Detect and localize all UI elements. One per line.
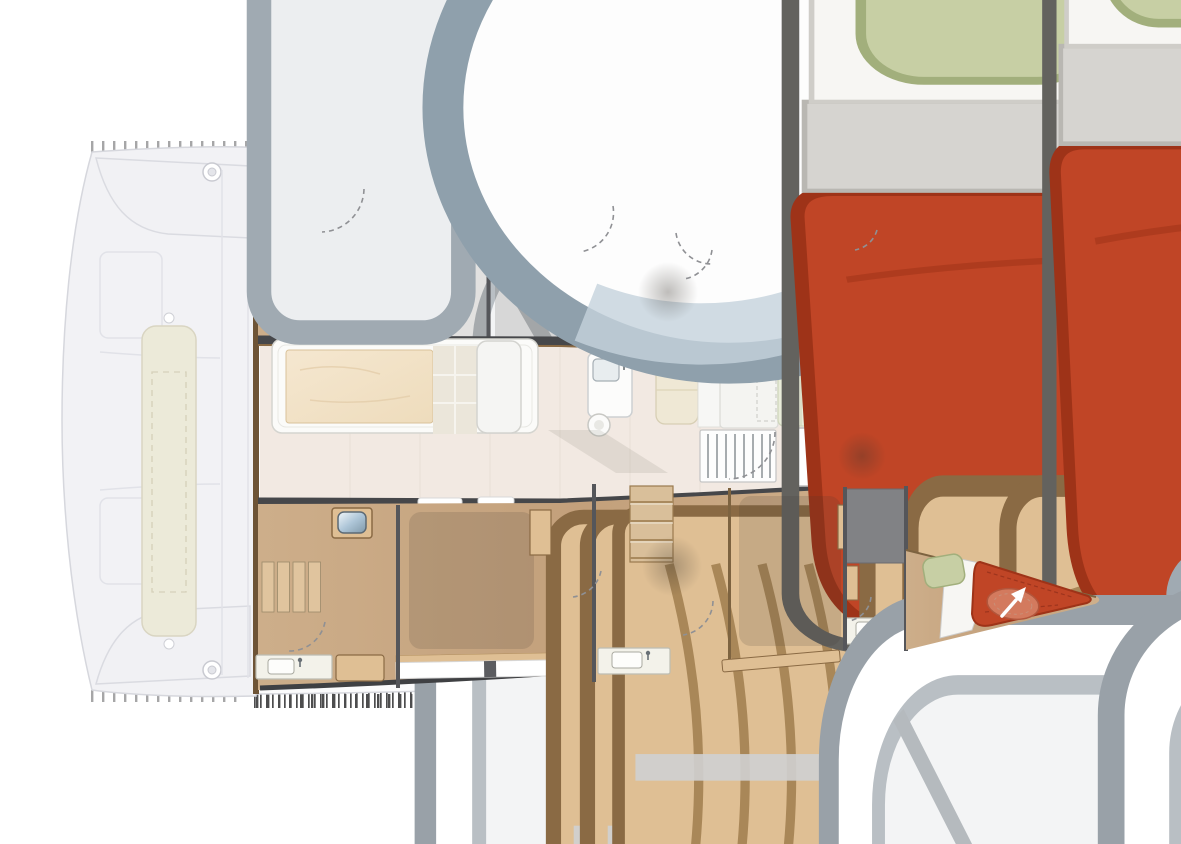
- double-bed-starboard-forward: [1049, 0, 1181, 643]
- bench: [336, 655, 384, 681]
- bed-shadow: [409, 512, 534, 649]
- winch-bottom: [203, 661, 221, 679]
- winch-top: [203, 163, 221, 181]
- cabin-bulkhead: [396, 505, 400, 688]
- bench-fitting-top: [164, 313, 174, 323]
- tile-floor-patch: [433, 346, 477, 434]
- bed-shadow: [739, 496, 841, 646]
- shelf: [846, 566, 858, 600]
- aft-cockpit: [62, 147, 256, 697]
- pillow: [922, 553, 967, 589]
- technical-space: [846, 489, 906, 563]
- foredeck-companionway: [700, 430, 776, 482]
- island-bench: [477, 341, 521, 433]
- sink-basin: [268, 659, 294, 674]
- bench-fitting-bottom: [164, 639, 174, 649]
- floor-plan-svg: [0, 0, 1181, 844]
- cabin-bulkhead: [728, 488, 731, 660]
- dining-table: [286, 350, 433, 423]
- sink-basin: [612, 652, 642, 668]
- catamaran-floor-plan: [0, 0, 1181, 844]
- cabin-bulkhead: [843, 487, 847, 650]
- vanity-mirror-unit: [332, 508, 372, 538]
- nightstand: [530, 510, 551, 555]
